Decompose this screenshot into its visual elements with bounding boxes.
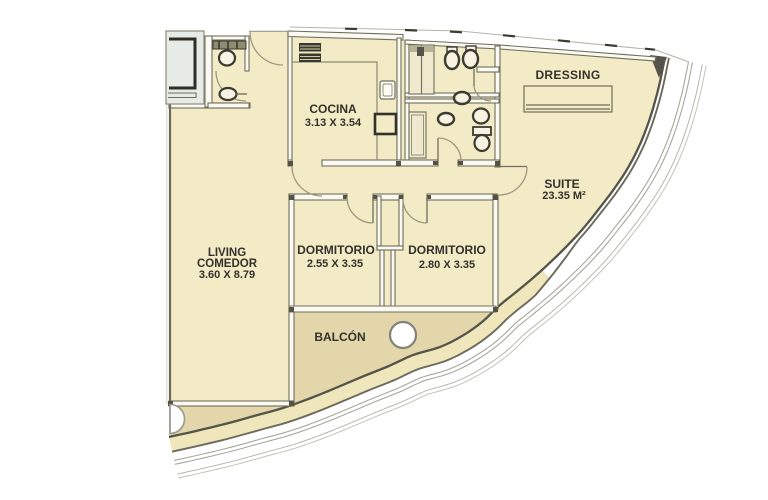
svg-text:BALCÓN: BALCÓN bbox=[314, 329, 365, 344]
svg-text:2.55 X 3.35: 2.55 X 3.35 bbox=[307, 258, 363, 270]
svg-text:COCINA: COCINA bbox=[309, 102, 357, 116]
svg-text:DRESSING: DRESSING bbox=[535, 68, 600, 82]
svg-text:23.35 M²: 23.35 M² bbox=[542, 190, 586, 202]
svg-text:DORMITORIO: DORMITORIO bbox=[297, 243, 375, 257]
svg-text:3.13 X 3.54: 3.13 X 3.54 bbox=[305, 117, 362, 129]
svg-text:DORMITORIO: DORMITORIO bbox=[408, 243, 486, 257]
svg-text:2.80 X 3.35: 2.80 X 3.35 bbox=[419, 259, 475, 271]
svg-text:SUITE: SUITE bbox=[544, 177, 579, 191]
svg-text:3.60 X 8.79: 3.60 X 8.79 bbox=[199, 269, 255, 281]
